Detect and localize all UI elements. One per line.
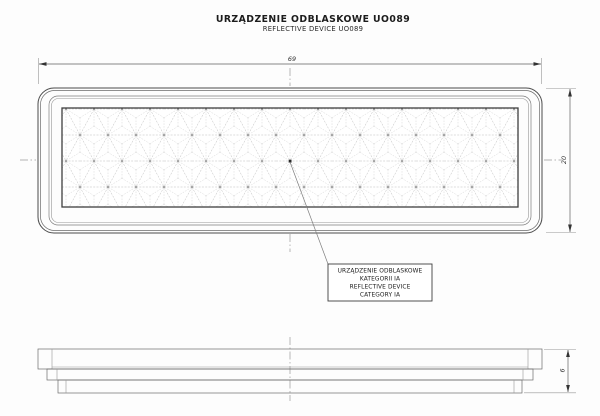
drawing-sheet: URZĄDZENIE ODBLASKOWE UO089 REFLECTIVE D… <box>0 0 600 416</box>
height-dimension-value: 20 <box>560 156 568 164</box>
retroreflective-lens-pattern <box>62 108 518 207</box>
thickness-arrow-bottom <box>566 385 570 392</box>
height-dimension: 20 <box>546 89 576 233</box>
drawing-title: URZĄDZENIE ODBLASKOWE UO089 REFLECTIVE D… <box>216 14 410 33</box>
title-line-polish: URZĄDZENIE ODBLASKOWE UO089 <box>216 14 410 25</box>
thickness-arrow-top <box>566 350 570 357</box>
category-label-line2: KATEGORII IA <box>360 277 400 283</box>
width-dimension-value: 69 <box>288 55 296 63</box>
category-label-line4: CATEGORY IA <box>360 293 400 299</box>
title-line-english: REFLECTIVE DEVICE UO089 <box>263 25 364 33</box>
category-label-line3: REFLECTIVE DEVICE <box>350 285 411 291</box>
technical-drawing-page: URZĄDZENIE ODBLASKOWE UO089 REFLECTIVE D… <box>0 0 600 416</box>
height-arrow-top <box>568 89 572 97</box>
front-view <box>38 88 542 233</box>
width-arrow-right <box>534 62 542 66</box>
thickness-dimension-value: 6 <box>559 368 567 372</box>
width-arrow-left <box>39 62 47 66</box>
thickness-dimension: 6 <box>524 350 576 393</box>
category-label-line1: URZĄDZENIE ODBLASKOWE <box>338 269 423 275</box>
height-arrow-bottom <box>568 225 572 233</box>
